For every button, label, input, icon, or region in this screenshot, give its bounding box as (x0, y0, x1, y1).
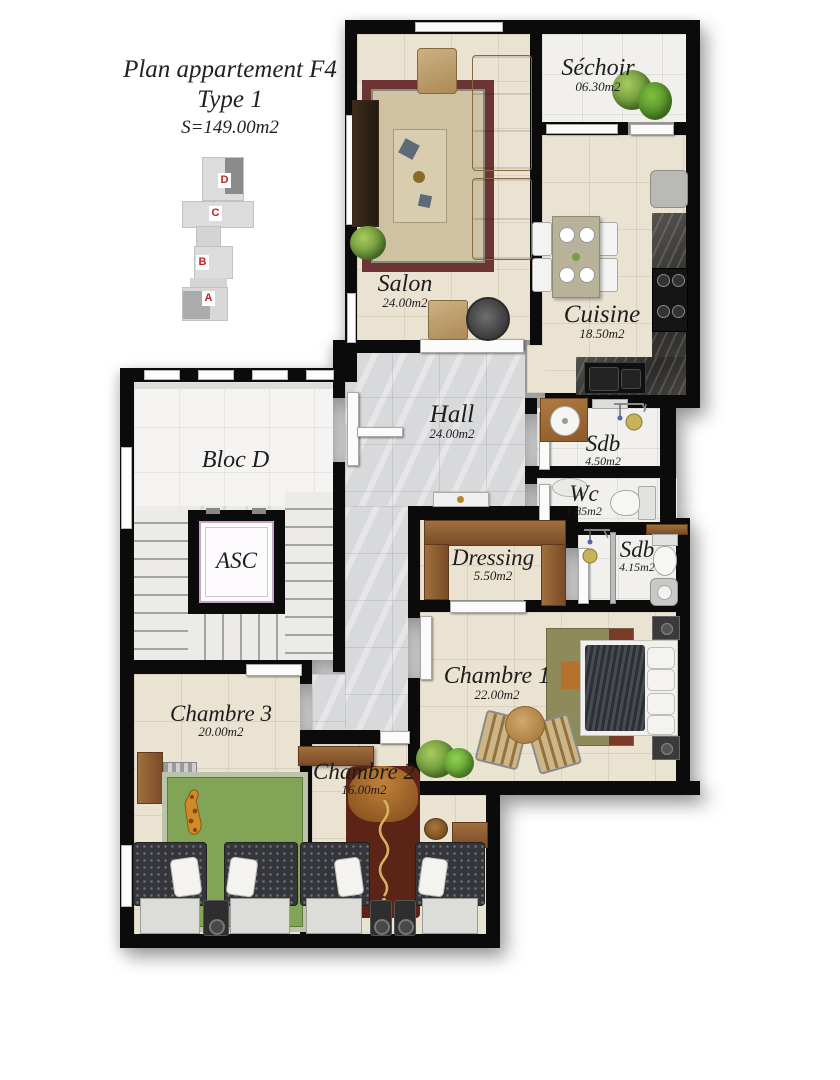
floor-plan-page: Plan appartement F4 Type 1 S=149.00m2 D … (0, 0, 840, 1080)
cuisine-doorway-floor (527, 345, 545, 393)
basin-bowl (657, 585, 672, 600)
salon-top-window (415, 22, 503, 32)
chambre3-name: Chambre 3 (148, 702, 294, 726)
basin-drain (562, 418, 568, 424)
chambre1-door-leaf (420, 616, 432, 680)
blocd-name: Bloc D (178, 448, 293, 473)
sdb2-basin (650, 578, 678, 606)
dining-chair (532, 222, 552, 256)
blocd-window-sill (134, 383, 333, 389)
sdb2-label: Sdb 4.15m2 (598, 538, 676, 573)
salon-plant (350, 226, 386, 260)
blocd-left-window (121, 447, 132, 529)
salon-area: 24.00m2 (350, 296, 460, 310)
round-table (505, 706, 545, 744)
wheel-icon (209, 919, 225, 935)
plate (579, 267, 595, 283)
pillow (647, 693, 675, 715)
kitchen-sink (584, 362, 646, 394)
stairs-right-flight (285, 492, 333, 660)
pillow (333, 856, 364, 897)
plan: ASC (0, 0, 840, 1080)
chambre2-stand-2 (394, 900, 416, 936)
hall-corridor-floor (345, 506, 408, 732)
sdb1-left-wall-b (525, 466, 537, 484)
console-ornament (457, 496, 464, 503)
chambre2-bed-left-foot (306, 898, 362, 934)
sechoir-window-sill (546, 124, 618, 134)
chambre1-area: 22.00m2 (435, 688, 559, 702)
cuisine-area: 18.50m2 (543, 327, 661, 341)
pillow (647, 669, 675, 691)
dressing-door-sill (450, 601, 526, 613)
hall-label: Hall 24.00m2 (400, 402, 504, 441)
sdb1-name: Sdb (553, 432, 653, 456)
nightstand-1 (652, 616, 680, 640)
elevator-door-tab (252, 508, 266, 514)
pillow (647, 647, 675, 669)
dining-table (552, 216, 600, 298)
exterior-wall-top (345, 20, 700, 34)
hall-name: Hall (400, 402, 504, 428)
dressing-wardrobe-top (424, 520, 566, 546)
chambre1-bottom-wall (408, 781, 700, 795)
blocd-window-3 (252, 370, 288, 380)
bed-blanket (585, 645, 645, 731)
nightstand-knob (661, 743, 673, 755)
toilet-tank (638, 486, 656, 520)
chambre3-wardrobe (137, 752, 163, 804)
chambre2-label: Chambre 2 16.00m2 (303, 760, 425, 796)
sink-basin (589, 367, 619, 391)
chambre2-bed-right-foot (422, 898, 478, 934)
sofa (472, 55, 532, 171)
burner (672, 274, 685, 287)
tv-unit (352, 100, 379, 227)
wheel-icon (374, 919, 390, 935)
nightstand-2 (652, 736, 680, 760)
wc-label: Wc 1.85m2 (540, 482, 628, 517)
salon-name: Salon (350, 272, 460, 297)
rug-motif (418, 194, 432, 208)
chambre2-area: 16.00m2 (303, 783, 425, 797)
rug-medallion (413, 171, 425, 183)
sdb2-area: 4.15m2 (598, 561, 676, 573)
dressing-area: 5.50m2 (433, 569, 553, 583)
chambre1-plant-2 (444, 748, 474, 778)
chambre3-area: 20.00m2 (148, 725, 294, 739)
sechoir-door-sill (630, 124, 674, 135)
elevator-cabin: ASC (199, 521, 274, 603)
table-centerpiece (572, 253, 580, 261)
dining-chair (532, 258, 552, 292)
wc-area: 1.85m2 (540, 505, 628, 517)
chambre2-name: Chambre 2 (303, 760, 425, 784)
dressing-label: Dressing 5.50m2 (433, 546, 553, 582)
elevator-label: ASC (201, 549, 272, 573)
cuisine-label: Cuisine 18.50m2 (543, 302, 661, 341)
chambre1-name: Chambre 1 (435, 664, 559, 689)
wc-name: Wc (540, 482, 628, 506)
chambre3-stand (203, 900, 229, 936)
fridge (650, 170, 688, 208)
sechoir-bottom-wall-right (674, 122, 700, 135)
sdb1-area: 4.50m2 (553, 455, 653, 467)
pillow (225, 856, 258, 898)
sink-basin-2 (621, 369, 641, 389)
dressing-name: Dressing (433, 546, 553, 570)
hall-console (433, 492, 489, 507)
rug-squiggle-icon (374, 800, 394, 910)
double-bed (580, 640, 678, 736)
exterior-wall-right-upper (686, 20, 700, 405)
elevator-shaft: ASC (188, 510, 285, 614)
dressing-bottom-wall (408, 600, 450, 612)
salon-bottom-wall (357, 340, 423, 353)
blocd-window-1 (144, 370, 180, 380)
sofa-2 (472, 178, 532, 260)
pillow (169, 856, 202, 898)
pillow (647, 715, 675, 735)
corridor-floor (312, 674, 345, 732)
blocd-window-2 (198, 370, 234, 380)
salon-door-sill (420, 339, 524, 353)
chambre2-stand-1 (370, 900, 392, 936)
chambre2-top-wall (300, 730, 380, 744)
giraffe-toy-icon (175, 787, 215, 847)
elevator-door-tab (206, 508, 220, 514)
salon-label: Salon 24.00m2 (350, 272, 460, 309)
blocd-window-4 (306, 370, 334, 380)
blocd-landing-floor (134, 382, 333, 506)
stairs-left-flight (134, 506, 188, 660)
basket (424, 818, 448, 840)
chambre3-bed-left-foot (140, 898, 200, 934)
burner (657, 274, 670, 287)
chambre3-label: Chambre 3 20.00m2 (148, 702, 294, 738)
sdb1-label: Sdb 4.50m2 (553, 432, 653, 467)
sechoir-label: Séchoir 06.30m2 (538, 56, 658, 93)
sdb2-name: Sdb (598, 538, 676, 562)
blocd-label: Bloc D (178, 448, 293, 473)
burner (672, 305, 685, 318)
stairs-bottom-flight (188, 614, 285, 660)
plate (559, 227, 575, 243)
dining-chair (598, 222, 618, 256)
chambre1-label: Chambre 1 22.00m2 (435, 664, 559, 701)
round-side-table (466, 297, 510, 341)
hall-area: 24.00m2 (400, 427, 504, 441)
chambre2-door-sill (380, 731, 410, 744)
armchair (417, 48, 457, 94)
hall-entry-door-leaf-2 (357, 427, 403, 437)
cuisine-name: Cuisine (543, 302, 661, 328)
wheel-icon (398, 919, 414, 935)
sdb1-left-wall-a (525, 398, 537, 414)
chambre3-door-leaf (246, 664, 302, 676)
blocd-right-wall-lower (333, 462, 345, 672)
chambre3-left-window (121, 845, 132, 907)
chambre2-right-wall (486, 781, 500, 948)
pillow (417, 856, 448, 897)
nightstand-knob (661, 623, 673, 635)
plate (579, 227, 595, 243)
sechoir-area: 06.30m2 (538, 80, 658, 94)
dining-chair (598, 258, 618, 292)
sechoir-name: Séchoir (538, 56, 658, 81)
blocd-right-wall-upper (333, 368, 345, 398)
chambre3-bed-right-foot (230, 898, 290, 934)
plate (559, 267, 575, 283)
